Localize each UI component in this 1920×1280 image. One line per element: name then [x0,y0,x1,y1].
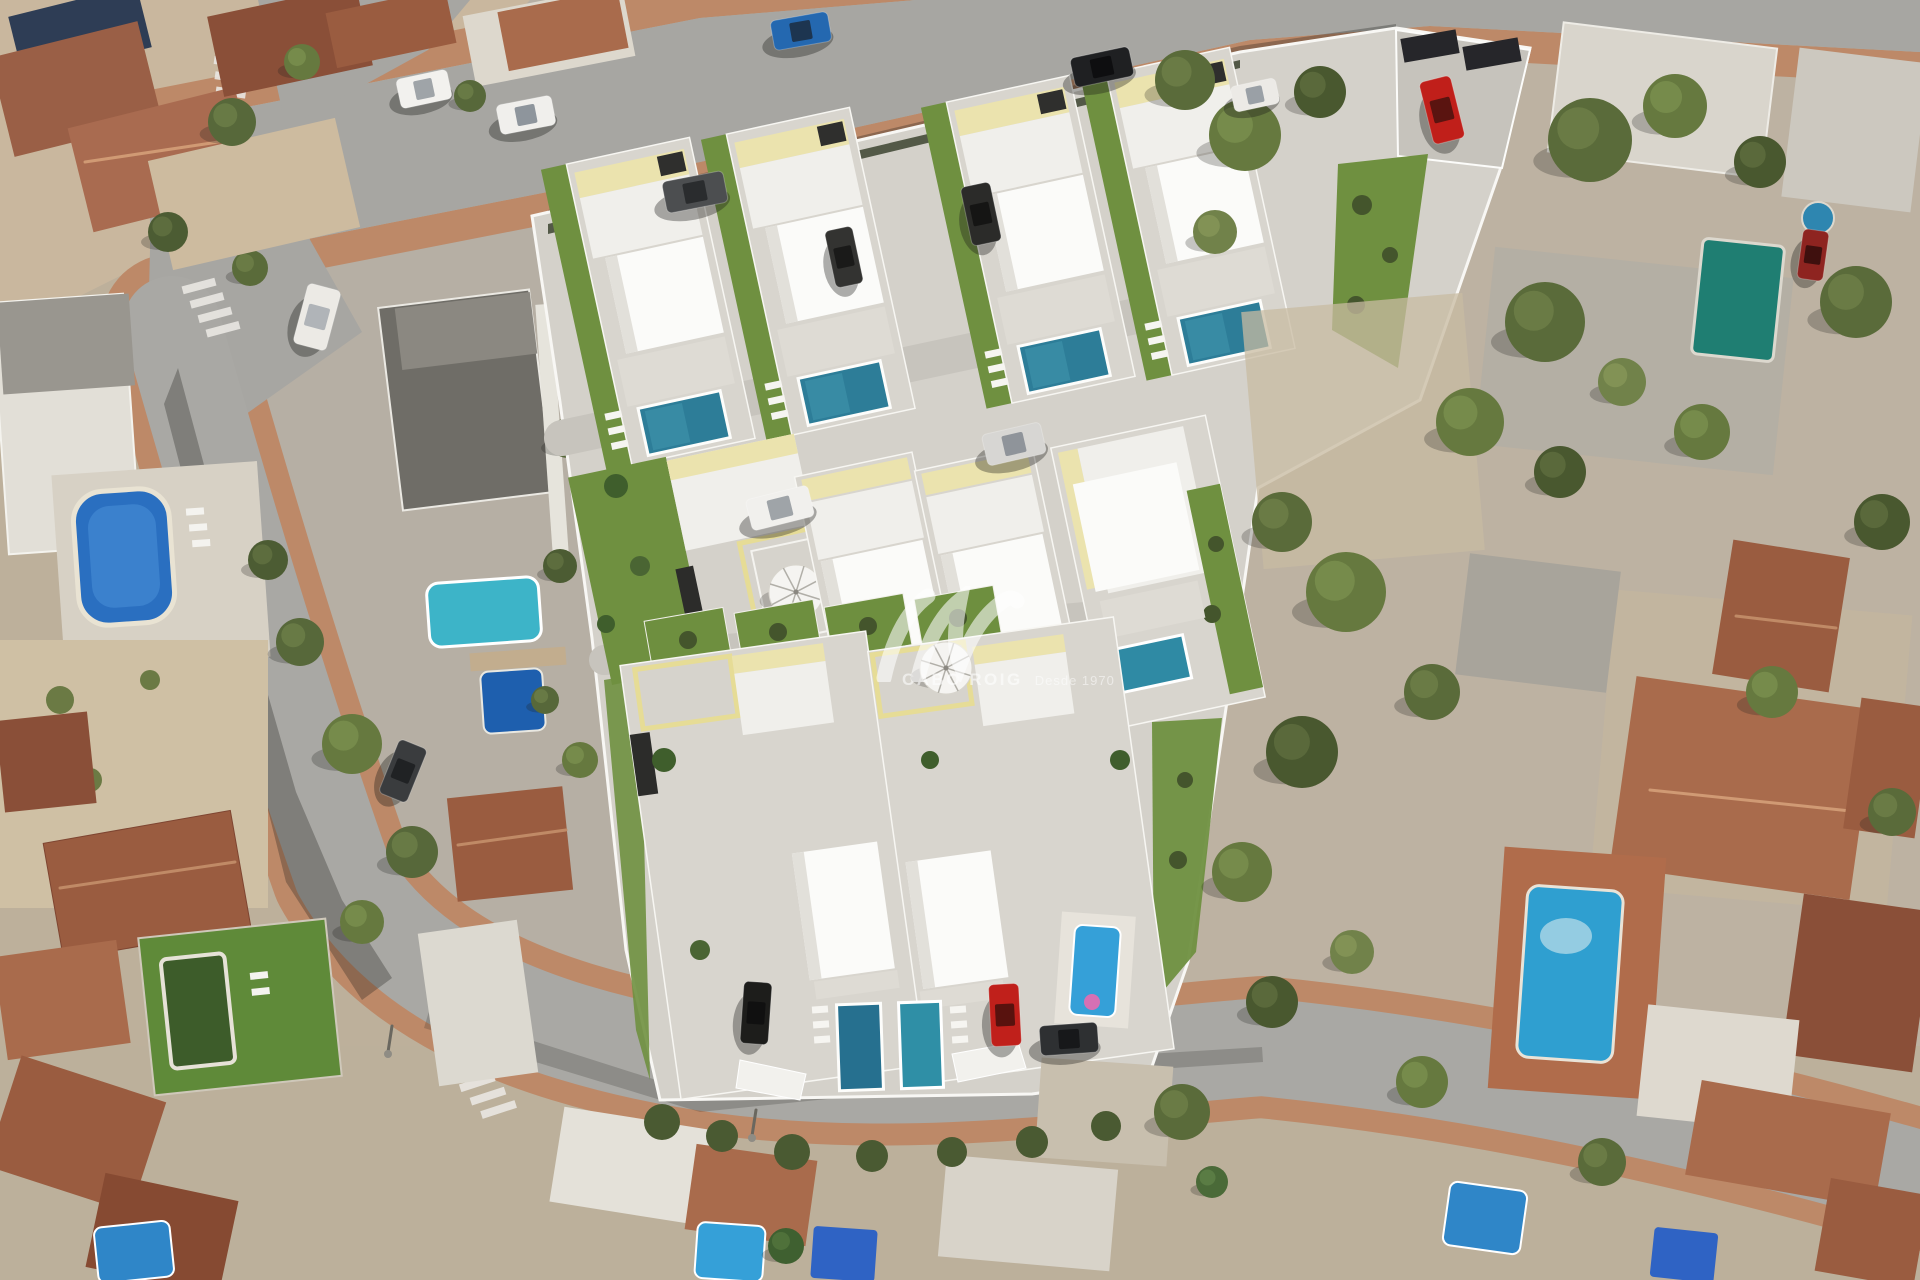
pool-green-lap [1691,238,1785,362]
shrub [1352,195,1372,215]
tree-highlight [1315,561,1355,601]
shrub [679,631,697,649]
shrub [769,623,787,641]
pool-beach-entry [1540,918,1592,954]
sun-loungers [186,507,204,515]
tree-highlight [392,832,418,858]
pool-float [1084,994,1100,1010]
house-white [938,1155,1118,1272]
palm [597,615,615,633]
pool-turquoise [426,576,542,648]
aerial-photo: CABO ROIGDesde 1970 [0,0,1920,1280]
palm [690,940,710,960]
roof-terracotta [1815,1178,1920,1280]
villa-roof [1073,462,1200,592]
tree-highlight [1752,672,1778,698]
roof-gray [0,294,135,395]
palm [1110,750,1130,770]
roof-terracotta [1781,894,1920,1073]
tree-highlight [1650,81,1682,113]
tree-highlight [1873,793,1897,817]
tree-highlight [236,254,254,272]
pool-tarp [810,1226,877,1280]
scene-canvas [0,0,1920,1280]
shrub [1203,605,1221,623]
pool-algae [160,953,235,1069]
villa-building [734,661,834,735]
tree-highlight [534,689,548,703]
tree-highlight [566,746,584,764]
shrub [46,686,74,714]
tree-highlight [547,553,564,570]
tree-highlight [1162,57,1192,87]
hedge [1091,1111,1121,1141]
sun-loungers [812,1005,828,1013]
sun-loungers [951,1020,967,1028]
palm [652,748,676,772]
pool-blue [1442,1181,1528,1255]
hedge [706,1120,738,1152]
sun-loungers [814,1035,830,1043]
tree-highlight [1252,982,1278,1008]
shrub [949,609,967,627]
tree-highlight [329,721,359,751]
solarium [635,656,738,729]
shrub [1208,536,1224,552]
tree-highlight [1219,849,1249,879]
lamp-head [748,1134,756,1142]
tree-highlight [458,84,474,100]
tree-highlight [1680,410,1708,438]
parasol [920,642,972,694]
villa-building [975,652,1075,726]
tree-highlight [1259,499,1289,529]
tree-highlight [345,905,367,927]
tree-highlight [213,103,237,127]
tree-highlight [1740,142,1766,168]
house-gray [1455,553,1621,693]
tree-highlight [1410,670,1438,698]
tree-highlight [1540,452,1566,478]
pool-bright [694,1222,766,1280]
tree-highlight [1300,72,1326,98]
tree-highlight [1557,107,1599,149]
tree-highlight [1514,291,1554,331]
hedge [856,1140,888,1172]
lamp-head [384,1050,392,1058]
shrub [1177,772,1193,788]
pool-ornate-inner [87,503,162,609]
tree-highlight [1860,500,1888,528]
hedge [937,1137,967,1167]
shrub [1382,247,1398,263]
hedge [774,1134,810,1170]
palm [630,556,650,576]
palm [921,751,939,769]
tree-highlight [1335,935,1357,957]
tree-highlight [1583,1143,1607,1167]
house-white-flat [1781,48,1920,213]
shrub [140,670,160,690]
roof-terracotta [0,711,97,812]
sun-loungers [189,523,207,531]
sun-loungers [952,1035,968,1043]
hedge [644,1104,680,1140]
tree-highlight [1443,395,1477,429]
pool [837,1003,884,1090]
pool-blue [93,1220,174,1280]
tree-highlight [1828,274,1864,310]
tree-highlight [152,216,172,236]
pool-tarp [1650,1227,1719,1280]
pool-blue-big [1516,885,1624,1063]
sun-loungers [813,1020,829,1028]
roof-terracotta [0,940,131,1060]
sun-loungers [192,539,210,547]
tree-highlight [288,48,306,66]
house-white [418,920,538,1086]
tree-highlight [252,544,272,564]
tree-highlight [1160,1090,1188,1118]
shrub [1169,851,1187,869]
tree-highlight [281,623,305,647]
palm [604,474,628,498]
hedge [1016,1126,1048,1158]
tree-highlight [1603,363,1627,387]
sun-loungers [950,1005,966,1013]
pool [899,1001,944,1088]
tree-highlight [1274,724,1310,760]
tree-highlight [1198,215,1220,237]
tree-highlight [1200,1170,1216,1186]
tree-highlight [1402,1062,1428,1088]
tree-highlight [772,1232,790,1250]
